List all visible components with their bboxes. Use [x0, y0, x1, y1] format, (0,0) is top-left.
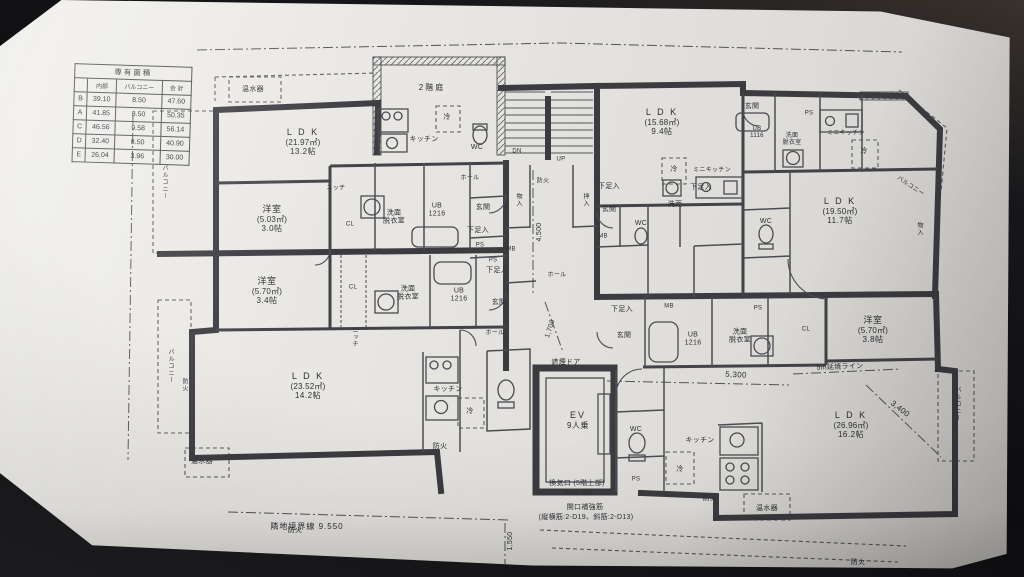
- label-mini-kitchen-2: ミニキッチン: [827, 130, 865, 137]
- label-shoebox-4: 下足入: [611, 306, 633, 314]
- label-fire-5: 防火: [703, 495, 718, 503]
- label-mb-1: MB: [506, 246, 516, 253]
- col-header-total: 合 計: [162, 80, 192, 95]
- dim-1550: 1,550: [507, 531, 515, 550]
- label-wc-3: WC: [635, 220, 647, 228]
- label-stairs-down: DN: [512, 148, 521, 155]
- label-fridge-5: 冷: [676, 466, 683, 474]
- inner-cell: 26.04: [85, 148, 115, 163]
- label-ub-4: UB1116: [750, 126, 764, 140]
- kitchen-counter: [720, 427, 758, 490]
- label-cl-2: CL: [349, 284, 357, 291]
- total-cell: 47.60: [161, 94, 191, 109]
- room-label-ldk-e: L D K(15.68㎡)9.4帖: [645, 107, 680, 137]
- room-label-yoshitsu-d: 洋室(5.70㎡)3.8帖: [858, 315, 888, 345]
- room-label-yoshitsu-b: 洋室(5.03㎡)3.0帖: [257, 204, 287, 234]
- sink-icon: [663, 180, 681, 196]
- label-kitchen-1: キッチン: [409, 136, 438, 144]
- balcony-cell: 8.50: [116, 93, 162, 108]
- label-storage-1: 物入: [515, 193, 521, 207]
- room-label-ldk-d: L D K(26.96㎡)16.2帖: [834, 410, 869, 440]
- note-reinforcement-detail: (縦横筋:2-D19、斜筋:2-D13): [539, 514, 634, 522]
- label-fire-6: 防火: [851, 559, 866, 567]
- label-fridge-4: 冷: [860, 148, 867, 156]
- unit-cell: E: [72, 148, 86, 162]
- total-cell: 50.35: [161, 108, 191, 123]
- unit-cell: C: [73, 120, 87, 134]
- label-smoke-door: 遮煙ドア: [551, 359, 580, 367]
- bathtub-icon: [434, 262, 471, 284]
- label-ps-2: PS: [489, 257, 498, 264]
- inner-cell: 39.10: [87, 92, 117, 107]
- label-kitchen-2: キッチン: [433, 386, 462, 394]
- label-cl-1: CL: [346, 221, 354, 228]
- note-reinforcement: 開口補強筋: [567, 504, 604, 512]
- label-storage-2: 物入: [916, 222, 922, 236]
- col-header-balcony: バルコニー: [117, 79, 163, 94]
- sink-icon: [375, 291, 398, 313]
- label-ps-3: PS: [632, 476, 641, 483]
- label-balcony-left-1: バルコニー: [161, 165, 167, 200]
- label-mb-2: MB: [598, 233, 608, 240]
- label-entrance-3: 玄関: [602, 206, 617, 214]
- label-fridge-2: 冷: [466, 408, 473, 416]
- label-shoebox-2: 下足入: [598, 183, 620, 191]
- note-vent: 換気口 (5階上部): [549, 480, 605, 488]
- label-mb-3: MB: [664, 303, 674, 310]
- label-niche-2: ニッチ: [351, 327, 357, 348]
- label-wc-4: WC: [630, 426, 642, 434]
- label-fire-2: 防火: [181, 378, 187, 392]
- mini-kitchen-counter: [820, 110, 862, 132]
- toilet-icon: [635, 228, 647, 244]
- label-washroom-3: 洗面脱衣室: [783, 133, 802, 147]
- label-hall-2: ホール: [548, 272, 567, 279]
- label-fire-1: 防火: [537, 178, 550, 185]
- label-ps-4: PS: [805, 110, 814, 117]
- label-balcony-left-2: バルコニー: [167, 349, 173, 384]
- room-label-elevator: EV9人乗: [567, 410, 589, 430]
- balcony-cell: 8.50: [116, 107, 162, 122]
- label-hall-3: ホール: [486, 330, 505, 337]
- label-ps-5: PS: [754, 305, 763, 312]
- label-ub-1: UB1216: [429, 203, 446, 220]
- label-mini-kitchen-1: ミニキッチン: [693, 167, 731, 174]
- label-shoebox-3: 下足入: [690, 184, 712, 192]
- balcony-cell: 8.50: [115, 135, 161, 150]
- label-washroom-2: 洗面脱衣室: [397, 286, 419, 303]
- label-ub-3: UB1216: [685, 332, 702, 349]
- label-shoebox-1: 下足入: [467, 227, 489, 235]
- balcony-cell: 9.58: [115, 121, 161, 136]
- label-entrance-1: 玄関: [476, 204, 491, 212]
- toilet-icon: [498, 380, 514, 408]
- label-entrance-4: 玄関: [617, 332, 632, 340]
- note-vent-size: 400×400: [563, 490, 593, 498]
- total-cell: 56.14: [161, 122, 191, 137]
- room-label-yoshitsu-a: 洋室(5.70㎡)3.4帖: [252, 276, 282, 306]
- area-table-corner: [74, 78, 88, 92]
- label-boundary-line: 隣地境界線 9.550: [270, 522, 343, 532]
- bathtub-icon: [649, 322, 678, 362]
- label-washroom-4: 洗面脱衣室: [729, 329, 751, 346]
- label-fire-spread-line: 5m延焼ライン: [816, 363, 863, 373]
- label-entrance-2: 玄関: [492, 299, 507, 307]
- table-row: E26.043.9630.00: [72, 148, 189, 166]
- label-oshiire: 押入: [582, 193, 588, 207]
- inner-cell: 32.40: [86, 134, 116, 149]
- label-hall-1: ホール: [461, 175, 480, 182]
- label-ps-1: PS: [476, 242, 485, 249]
- label-water-heater-1: 温水器: [242, 86, 264, 94]
- label-fridge-1: 冷: [443, 114, 450, 122]
- label-washroom-1: 洗面脱衣室: [383, 210, 405, 227]
- label-fridge-3: 冷: [670, 166, 677, 174]
- label-water-heater-2: 温水器: [191, 458, 213, 466]
- inner-cell: 46.56: [86, 120, 116, 135]
- label-entrance-5: 玄関: [745, 103, 760, 111]
- label-wc-1: WC: [471, 144, 483, 152]
- room-label-ldk-c: L D K(19.50㎡)11.7帖: [823, 196, 858, 226]
- balcony-cell: 3.96: [114, 149, 160, 164]
- label-fire-3: 防火: [433, 443, 448, 451]
- sink-icon: [751, 336, 773, 356]
- room-label-ldk-b: L D K(21.97㎡)13.2帖: [286, 127, 321, 157]
- col-header-inner: 内部: [87, 78, 117, 93]
- room-label-ldk-a: L D K(23.52㎡)14.2帖: [291, 371, 326, 401]
- total-cell: 40.90: [160, 136, 190, 151]
- total-cell: 30.00: [160, 150, 190, 165]
- photo-background: 専有面積 内部 バルコニー 合 計 B39.108.5047.60 A41.85…: [0, 0, 1024, 577]
- label-kitchen-3: キッチン: [685, 437, 714, 445]
- unit-cell: D: [72, 134, 86, 148]
- label-ub-2: UB1216: [451, 288, 468, 305]
- label-cl-3: CL: [802, 326, 810, 333]
- sink-icon: [783, 150, 803, 167]
- dim-5300: 5,300: [725, 370, 747, 381]
- inner-cell: 41.85: [86, 106, 116, 121]
- toilet-icon: [473, 124, 487, 144]
- area-table: 専有面積 内部 バルコニー 合 計 B39.108.5047.60 A41.85…: [71, 63, 192, 166]
- kitchen-counter: [378, 109, 408, 152]
- label-stairs-up: UP: [557, 156, 566, 163]
- bathtub-icon: [412, 227, 458, 247]
- sink-icon: [361, 196, 384, 218]
- label-balcony-right-2: バルコニー: [954, 387, 960, 422]
- label-water-heater-3: 温水器: [756, 505, 778, 513]
- unit-cell: A: [73, 106, 87, 120]
- paper-sheet: 専有面積 内部 バルコニー 合 計 B39.108.5047.60 A41.85…: [0, 0, 1024, 577]
- label-washroom-5: 洗面: [668, 201, 683, 209]
- unit-cell: B: [74, 92, 88, 106]
- toilet-icon: [759, 225, 773, 249]
- label-niche-1: ニッチ: [327, 185, 346, 192]
- label-shoebox-5: 下足入: [486, 267, 508, 275]
- dim-4500: 4,500: [536, 222, 544, 241]
- label-wc-2: WC: [760, 218, 772, 226]
- room-label-roof-garden: 2階庭: [419, 83, 445, 93]
